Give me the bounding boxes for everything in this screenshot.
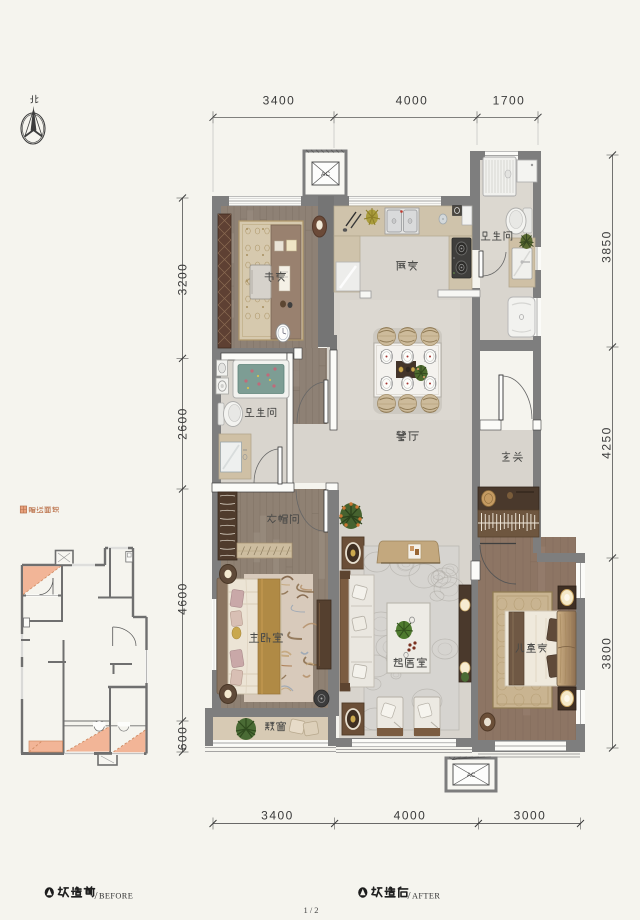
svg-text:BEFORE: BEFORE [99,892,133,901]
svg-text:3400: 3400 [263,94,296,108]
svg-text:600: 600 [176,726,190,751]
svg-text:3000: 3000 [514,809,547,823]
svg-text:3200: 3200 [176,263,190,296]
svg-text:1700: 1700 [493,94,526,108]
svg-text:4000: 4000 [396,94,429,108]
svg-text:3400: 3400 [261,809,294,823]
svg-text:AC: AC [467,773,476,779]
svg-text:2600: 2600 [176,407,190,440]
svg-text:AFTER: AFTER [412,892,440,901]
svg-text:1 / 2: 1 / 2 [303,905,318,915]
svg-text:3800: 3800 [600,637,614,670]
svg-text:4000: 4000 [394,809,427,823]
svg-text:4250: 4250 [600,426,614,459]
svg-text:4600: 4600 [176,582,190,615]
svg-text:3850: 3850 [600,230,614,263]
svg-text:AC: AC [321,171,330,178]
